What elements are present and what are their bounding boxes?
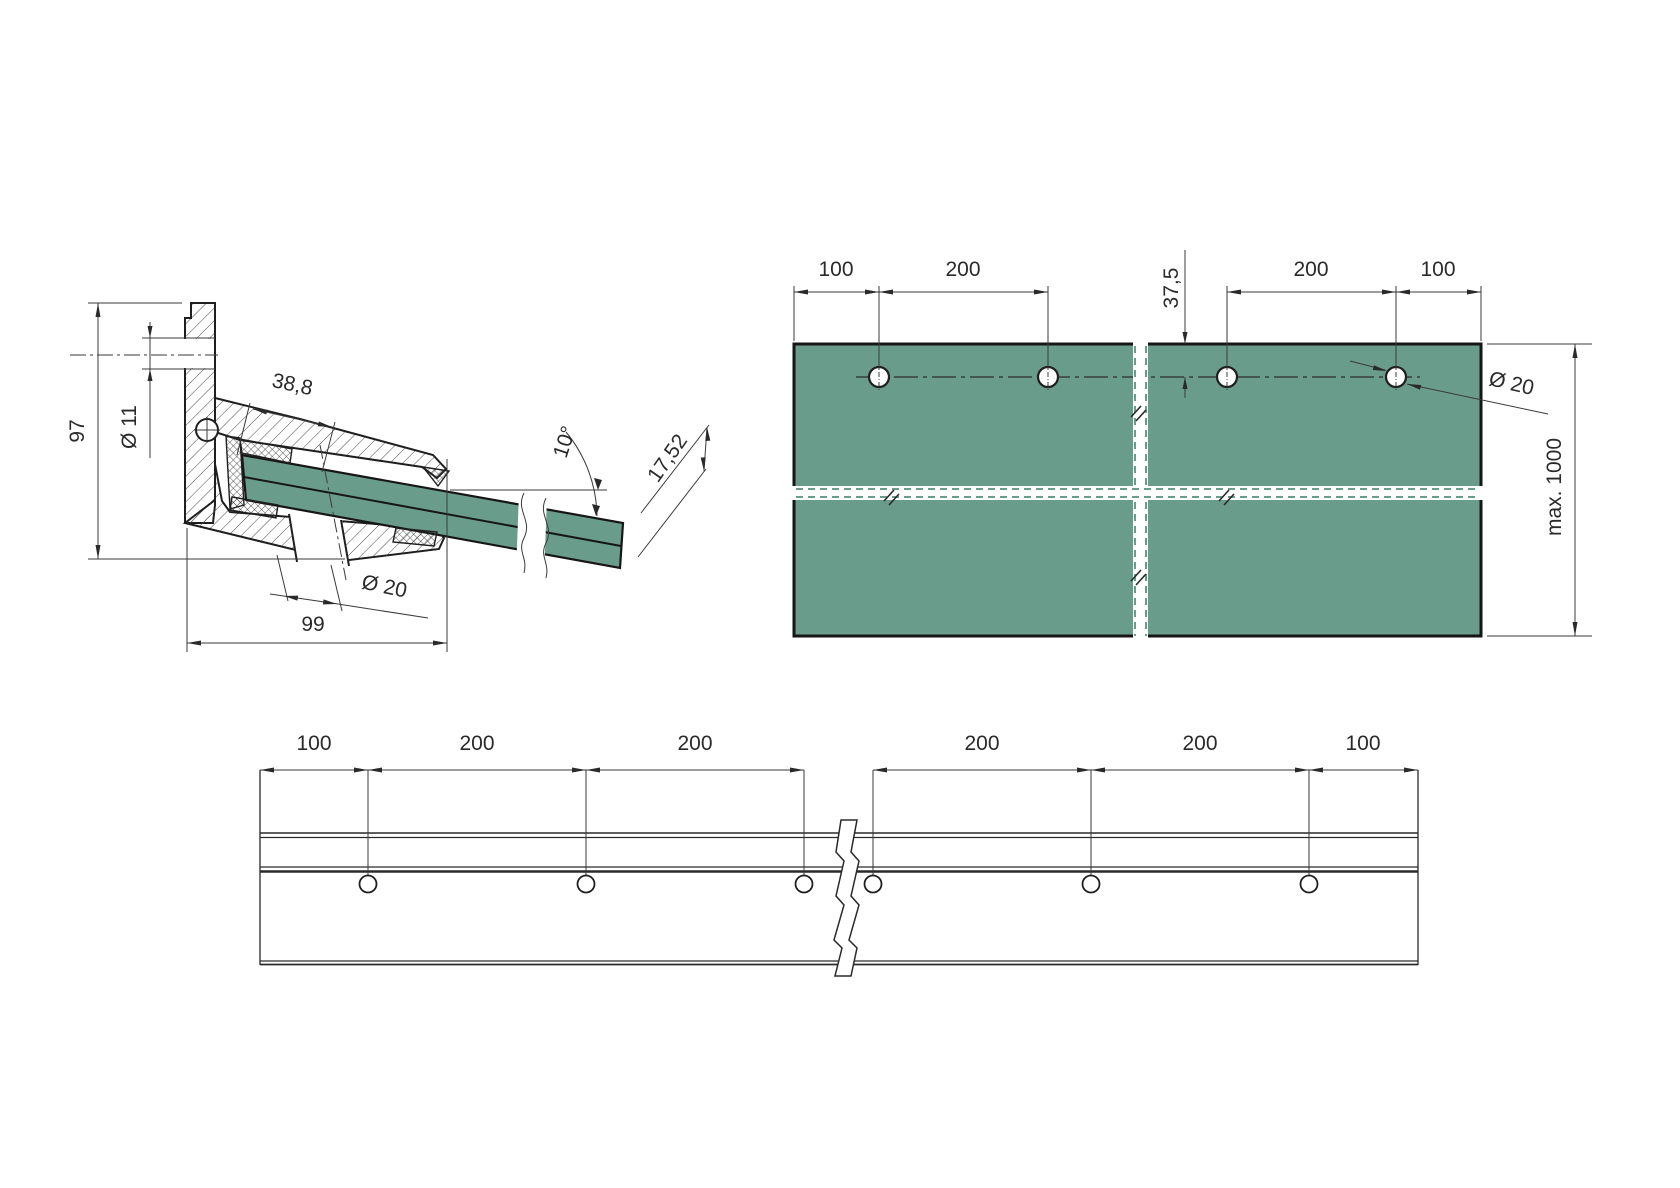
dim-100-right: 100 bbox=[1420, 258, 1455, 281]
front-dim-5: 100 bbox=[1345, 732, 1380, 755]
plan-view: 100 200 200 100 37,5 Ø 20 bbox=[742, 250, 1592, 650]
wall-slot bbox=[184, 339, 214, 368]
dim-200-right: 200 bbox=[1293, 258, 1328, 281]
dim-97: 97 bbox=[66, 419, 89, 442]
dim-o20-section: Ø 20 bbox=[360, 571, 409, 603]
dim-10deg: 10° bbox=[549, 423, 581, 460]
glass-break-mask bbox=[516, 492, 547, 579]
horizontal-break bbox=[742, 486, 1502, 500]
dim-max-1000: max. 1000 bbox=[1543, 438, 1566, 536]
dim-37-5: 37,5 bbox=[1160, 268, 1183, 309]
front-dim-2: 200 bbox=[677, 732, 712, 755]
vertical-break bbox=[1133, 316, 1148, 650]
drawing-sheet: 97 Ø 11 38,8 10° bbox=[0, 0, 1680, 1188]
front-dim-4: 200 bbox=[1182, 732, 1217, 755]
dim-o20-plan: Ø 20 bbox=[1487, 367, 1537, 400]
gasket-tip-wedge bbox=[423, 467, 449, 486]
bracket-wall-plate bbox=[185, 303, 215, 523]
dim-17-52: 17,52 bbox=[643, 430, 692, 486]
gasket-bottom-right bbox=[393, 528, 437, 546]
front-view: 100 200 200 200 200 100 bbox=[260, 732, 1418, 976]
front-dim-1: 200 bbox=[459, 732, 494, 755]
front-dimensions: 100 200 200 200 200 100 bbox=[260, 732, 1418, 773]
dim-o11: Ø 11 bbox=[118, 405, 141, 449]
dim-38-8: 38,8 bbox=[270, 369, 315, 400]
dimension-slot-diameter: Ø 11 bbox=[118, 322, 153, 458]
front-dim-0: 100 bbox=[296, 732, 331, 755]
dim-99: 99 bbox=[301, 613, 324, 636]
technical-drawing-canvas: 97 Ø 11 38,8 10° bbox=[0, 0, 1680, 1188]
dim-100-left: 100 bbox=[818, 258, 853, 281]
section-view: 97 Ø 11 38,8 10° bbox=[66, 303, 710, 652]
profile-break bbox=[834, 820, 859, 976]
front-dim-3: 200 bbox=[964, 732, 999, 755]
dim-200-left: 200 bbox=[945, 258, 980, 281]
dimension-glass-thickness: 17,52 bbox=[638, 425, 710, 557]
